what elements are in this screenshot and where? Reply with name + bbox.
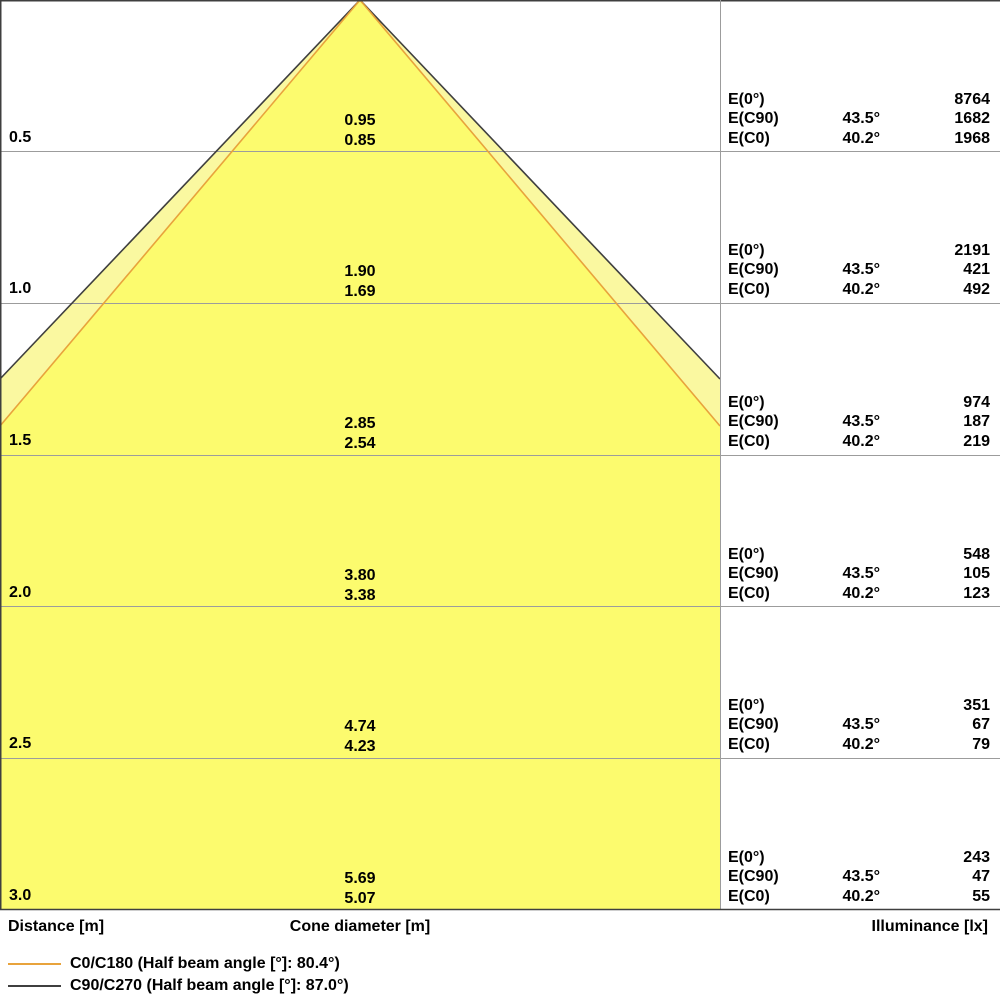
legend-label-c90: C90/C270 (Half beam angle [°]: 87.0°) [70, 977, 349, 995]
legend-line-c0-icon [8, 963, 61, 965]
legend-line-c90-icon [8, 985, 61, 987]
illuminance-axis-title: Illuminance [lx] [872, 918, 988, 936]
legend-item-c0-c180: C0/C180 (Half beam angle [°]: 80.4°) [8, 953, 349, 975]
legend-item-c90-c270: C90/C270 (Half beam angle [°]: 87.0°) [8, 975, 349, 997]
cone-diameter-axis-title: Cone diameter [m] [0, 918, 720, 936]
cone-chart-graphic [0, 0, 1000, 1000]
legend: C0/C180 (Half beam angle [°]: 80.4°) C90… [8, 953, 349, 997]
light-cone-diagram: 0.5 0.95 0.85 E(0°)8764 E(C90)43.5°1682 … [0, 0, 1000, 1000]
axis-title-row: Distance [m] Cone diameter [m] Illuminan… [0, 918, 1000, 940]
legend-label-c0: C0/C180 (Half beam angle [°]: 80.4°) [70, 955, 340, 973]
